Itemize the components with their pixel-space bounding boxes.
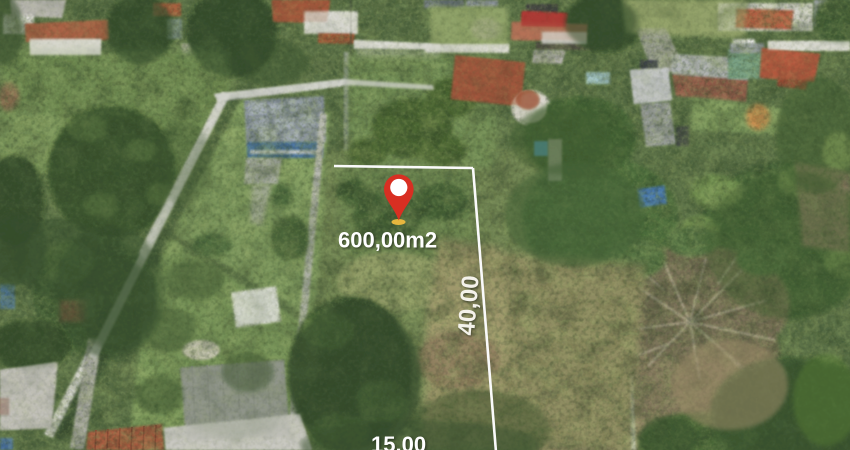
svg-text:15.00: 15.00 <box>371 432 426 450</box>
svg-text:40,00: 40,00 <box>453 274 485 336</box>
svg-text:600,00m2: 600,00m2 <box>338 228 437 253</box>
